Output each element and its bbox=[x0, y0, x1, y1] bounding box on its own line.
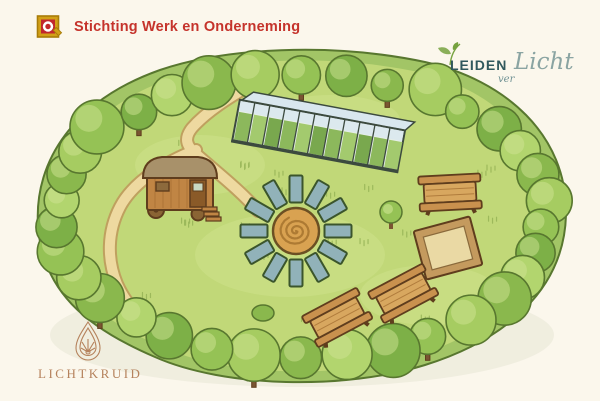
lichtkruid-logo: LICHTKRUID bbox=[38, 320, 138, 382]
swo-logo-text: Stichting Werk en Onderneming bbox=[74, 19, 300, 35]
leidenverlicht-caps: LEIDEN bbox=[450, 57, 507, 73]
leidenverlicht-ver: ver bbox=[498, 74, 514, 85]
swo-logo-icon bbox=[36, 13, 63, 40]
garden-map-page: Stichting Werk en Onderneming LEIDEN ver… bbox=[0, 0, 600, 401]
wagon-steps bbox=[206, 217, 221, 221]
botanical-drop-icon bbox=[71, 320, 105, 364]
garden-bed bbox=[290, 176, 303, 203]
wagon-steps bbox=[202, 207, 217, 211]
garden-bed bbox=[241, 225, 268, 238]
leidenverlicht-logo: LEIDEN ver Licht bbox=[434, 42, 574, 94]
picnic-table bbox=[418, 173, 482, 215]
lichtkruid-logo-text: LICHTKRUID bbox=[38, 366, 138, 382]
swo-logo: Stichting Werk en Onderneming bbox=[36, 13, 300, 40]
wagon-roof bbox=[143, 157, 217, 178]
wagon-steps bbox=[204, 212, 219, 216]
leidenverlicht-licht: Licht bbox=[514, 49, 574, 75]
bush bbox=[252, 305, 274, 321]
garden-bed bbox=[290, 260, 303, 287]
wagon-window bbox=[156, 182, 169, 191]
garden-bed bbox=[325, 225, 352, 238]
